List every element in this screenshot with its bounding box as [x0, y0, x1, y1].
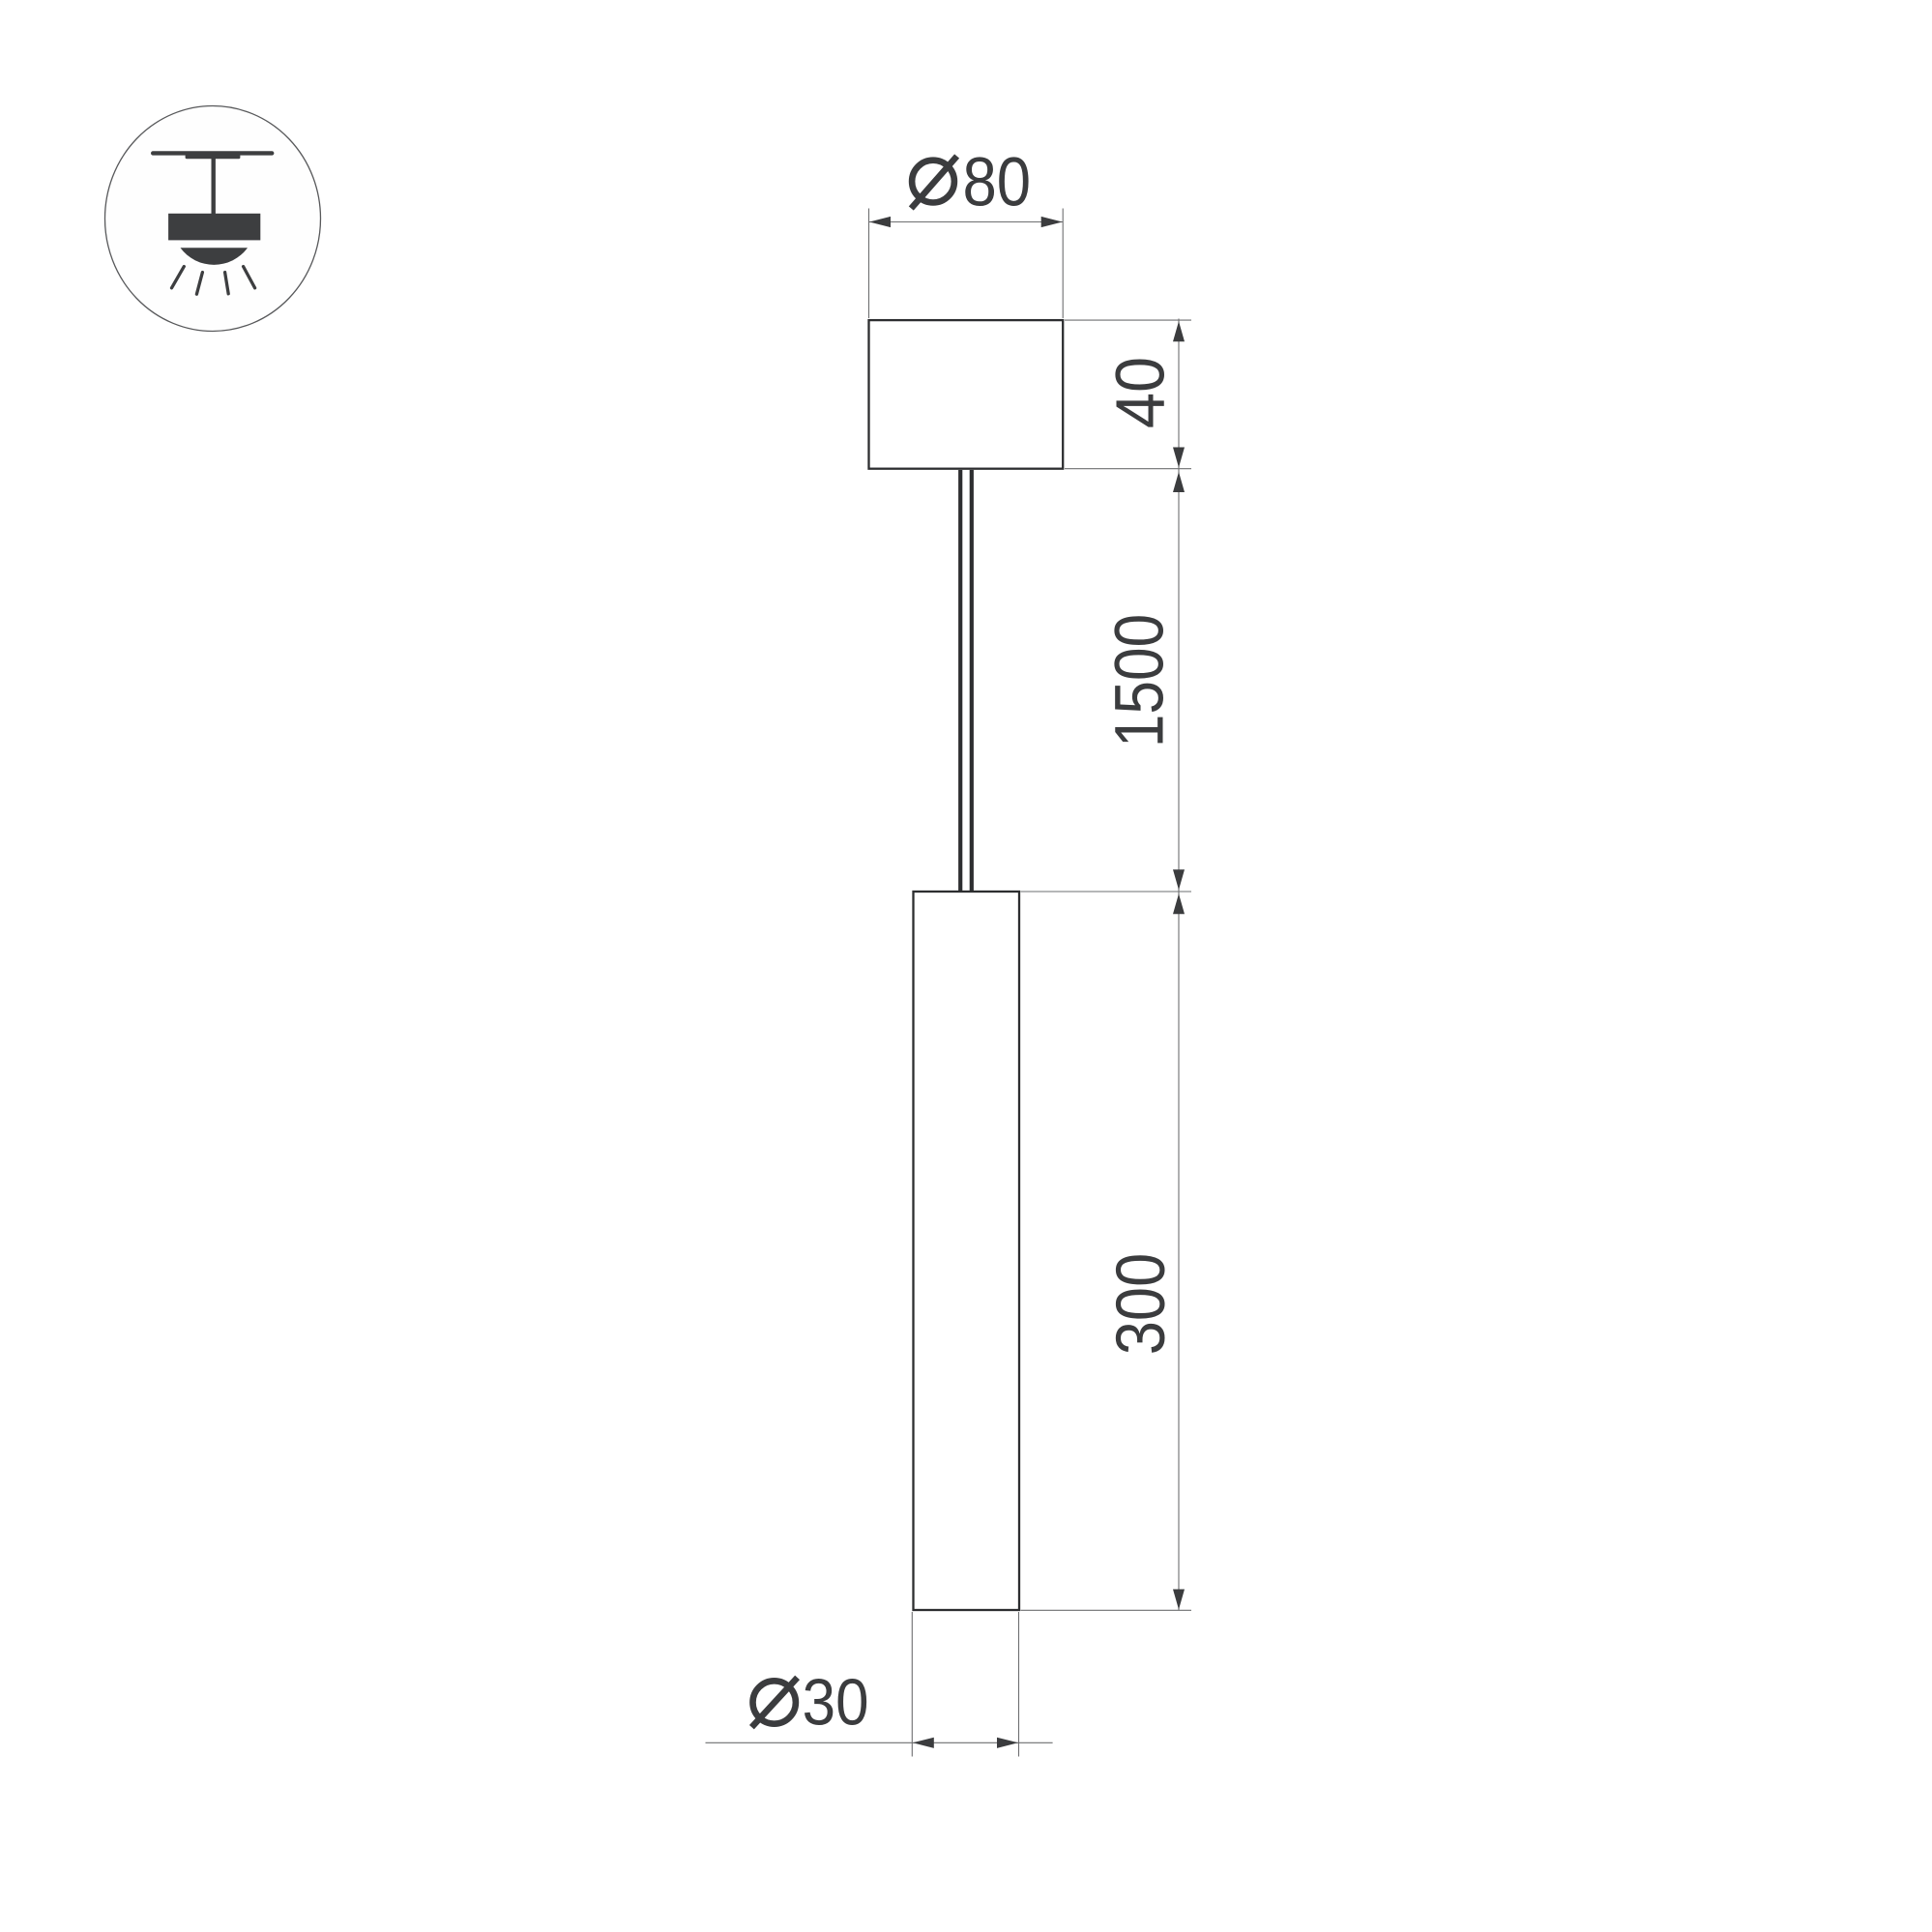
svg-text:1500: 1500: [1102, 614, 1179, 747]
svg-text:40: 40: [1102, 357, 1179, 428]
svg-text:80: 80: [963, 144, 1032, 220]
svg-text:300: 300: [1103, 1253, 1180, 1355]
svg-text:30: 30: [803, 1665, 869, 1739]
